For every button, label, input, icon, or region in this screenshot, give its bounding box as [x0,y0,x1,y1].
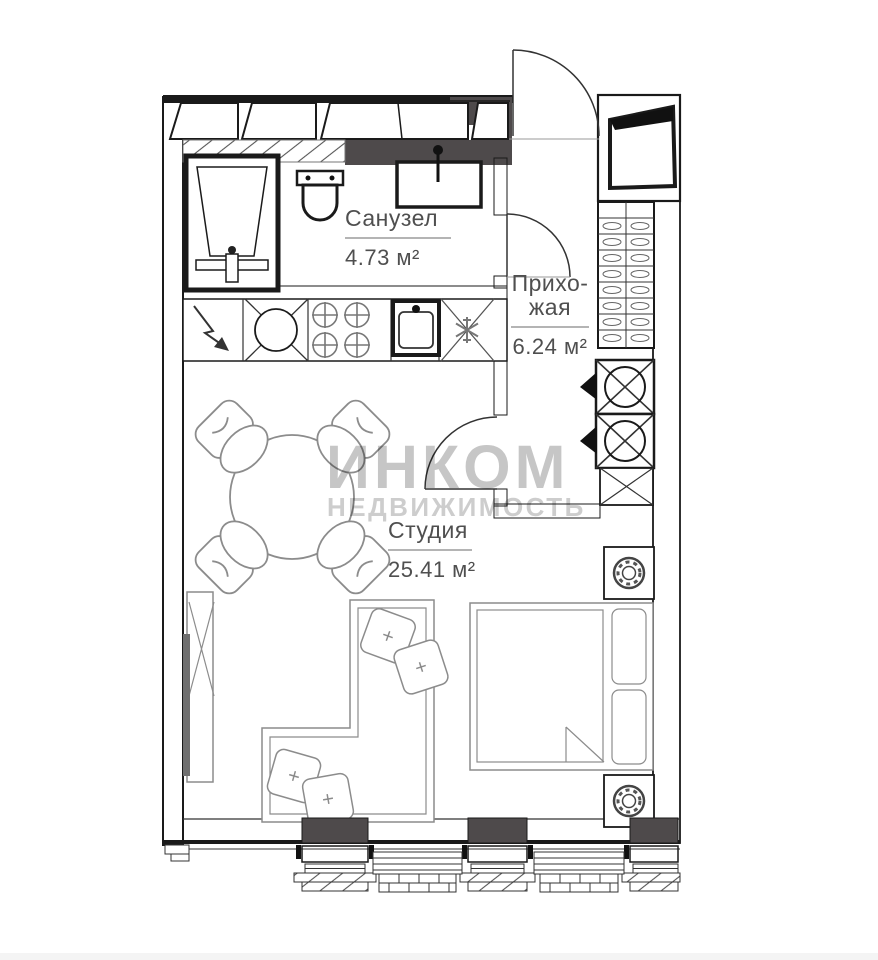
bottom-strip [0,953,878,960]
label-divider [511,326,589,328]
chair-ne [308,395,394,481]
hallway-area: 6.24 м² [504,335,596,358]
label-divider [388,549,472,551]
window-pier [302,818,368,843]
washing-machine-2 [580,414,654,468]
entrance-door [509,50,599,139]
bathtub [186,156,278,290]
chair-nw [190,395,276,481]
sofa [262,600,450,826]
dining-set [190,395,394,598]
chair-se [308,512,394,598]
bathroom-label: Санузел 4.73 м² [345,206,451,269]
cabinet-box [600,468,653,505]
bathroom-door [507,214,570,277]
label-divider [345,237,451,239]
window-pier [630,818,678,843]
hallway-name: Прихо- жая [504,271,596,319]
studio-name: Студия [388,518,480,542]
kitchen-counter [183,299,507,361]
kitchen-sink-square [393,301,439,355]
floor-plan-drawing [0,0,878,960]
hallway-label: Прихо- жая 6.24 м² [504,271,596,358]
studio-door [425,417,497,489]
tv-unit [183,592,214,782]
toilet [297,171,343,220]
vent-shaft-top [604,547,654,599]
washing-machine-1 [580,360,654,414]
floor-plan-page: Санузел 4.73 м² Прихо- жая 6.24 м² Студи… [0,0,878,960]
bed [470,603,653,770]
bathroom-area: 4.73 м² [345,246,451,269]
facade-details [165,818,680,892]
studio-area: 25.41 м² [388,558,480,581]
studio-label: Студия 25.41 м² [388,518,480,581]
balcony-brickwork [165,845,624,892]
chair-sw [190,512,276,598]
tv-screen [183,634,190,776]
window-pier [468,818,527,843]
bathroom-name: Санузел [345,206,451,230]
wardrobe-shelves [598,202,654,348]
